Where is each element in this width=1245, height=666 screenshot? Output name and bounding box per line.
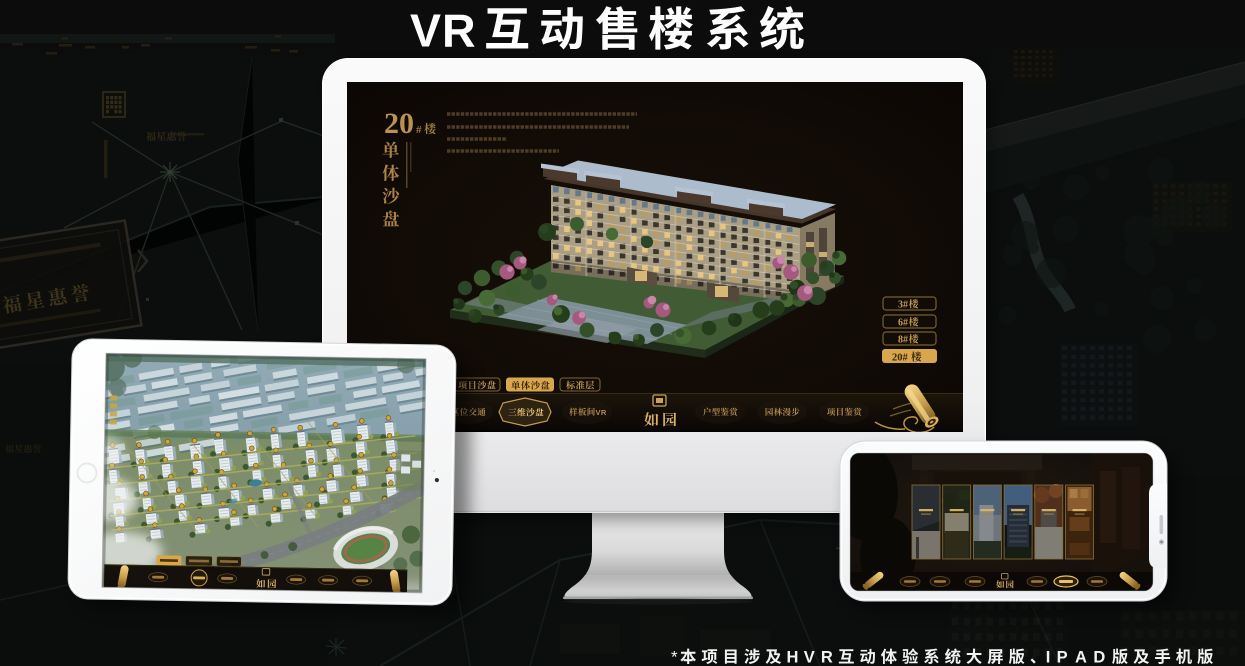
svg-text:R: R: [821, 649, 833, 666]
svg-text:3#: 3#: [898, 300, 908, 311]
svg-text:*: *: [671, 648, 678, 666]
svg-text:R: R: [601, 408, 607, 417]
svg-text:V: V: [596, 408, 601, 417]
svg-text:VR: VR: [410, 5, 477, 57]
svg-text:I: I: [1046, 649, 1051, 666]
svg-text:H: H: [787, 649, 799, 666]
svg-text:D: D: [1093, 649, 1105, 666]
svg-text:6#: 6#: [898, 318, 908, 329]
svg-text:V: V: [804, 649, 815, 666]
svg-text:#: #: [416, 124, 422, 136]
svg-text:20: 20: [384, 107, 414, 140]
svg-text:P: P: [1057, 649, 1068, 666]
svg-text:A: A: [1075, 649, 1087, 666]
svg-text:20#: 20#: [892, 353, 909, 364]
svg-text:8#: 8#: [898, 335, 908, 346]
